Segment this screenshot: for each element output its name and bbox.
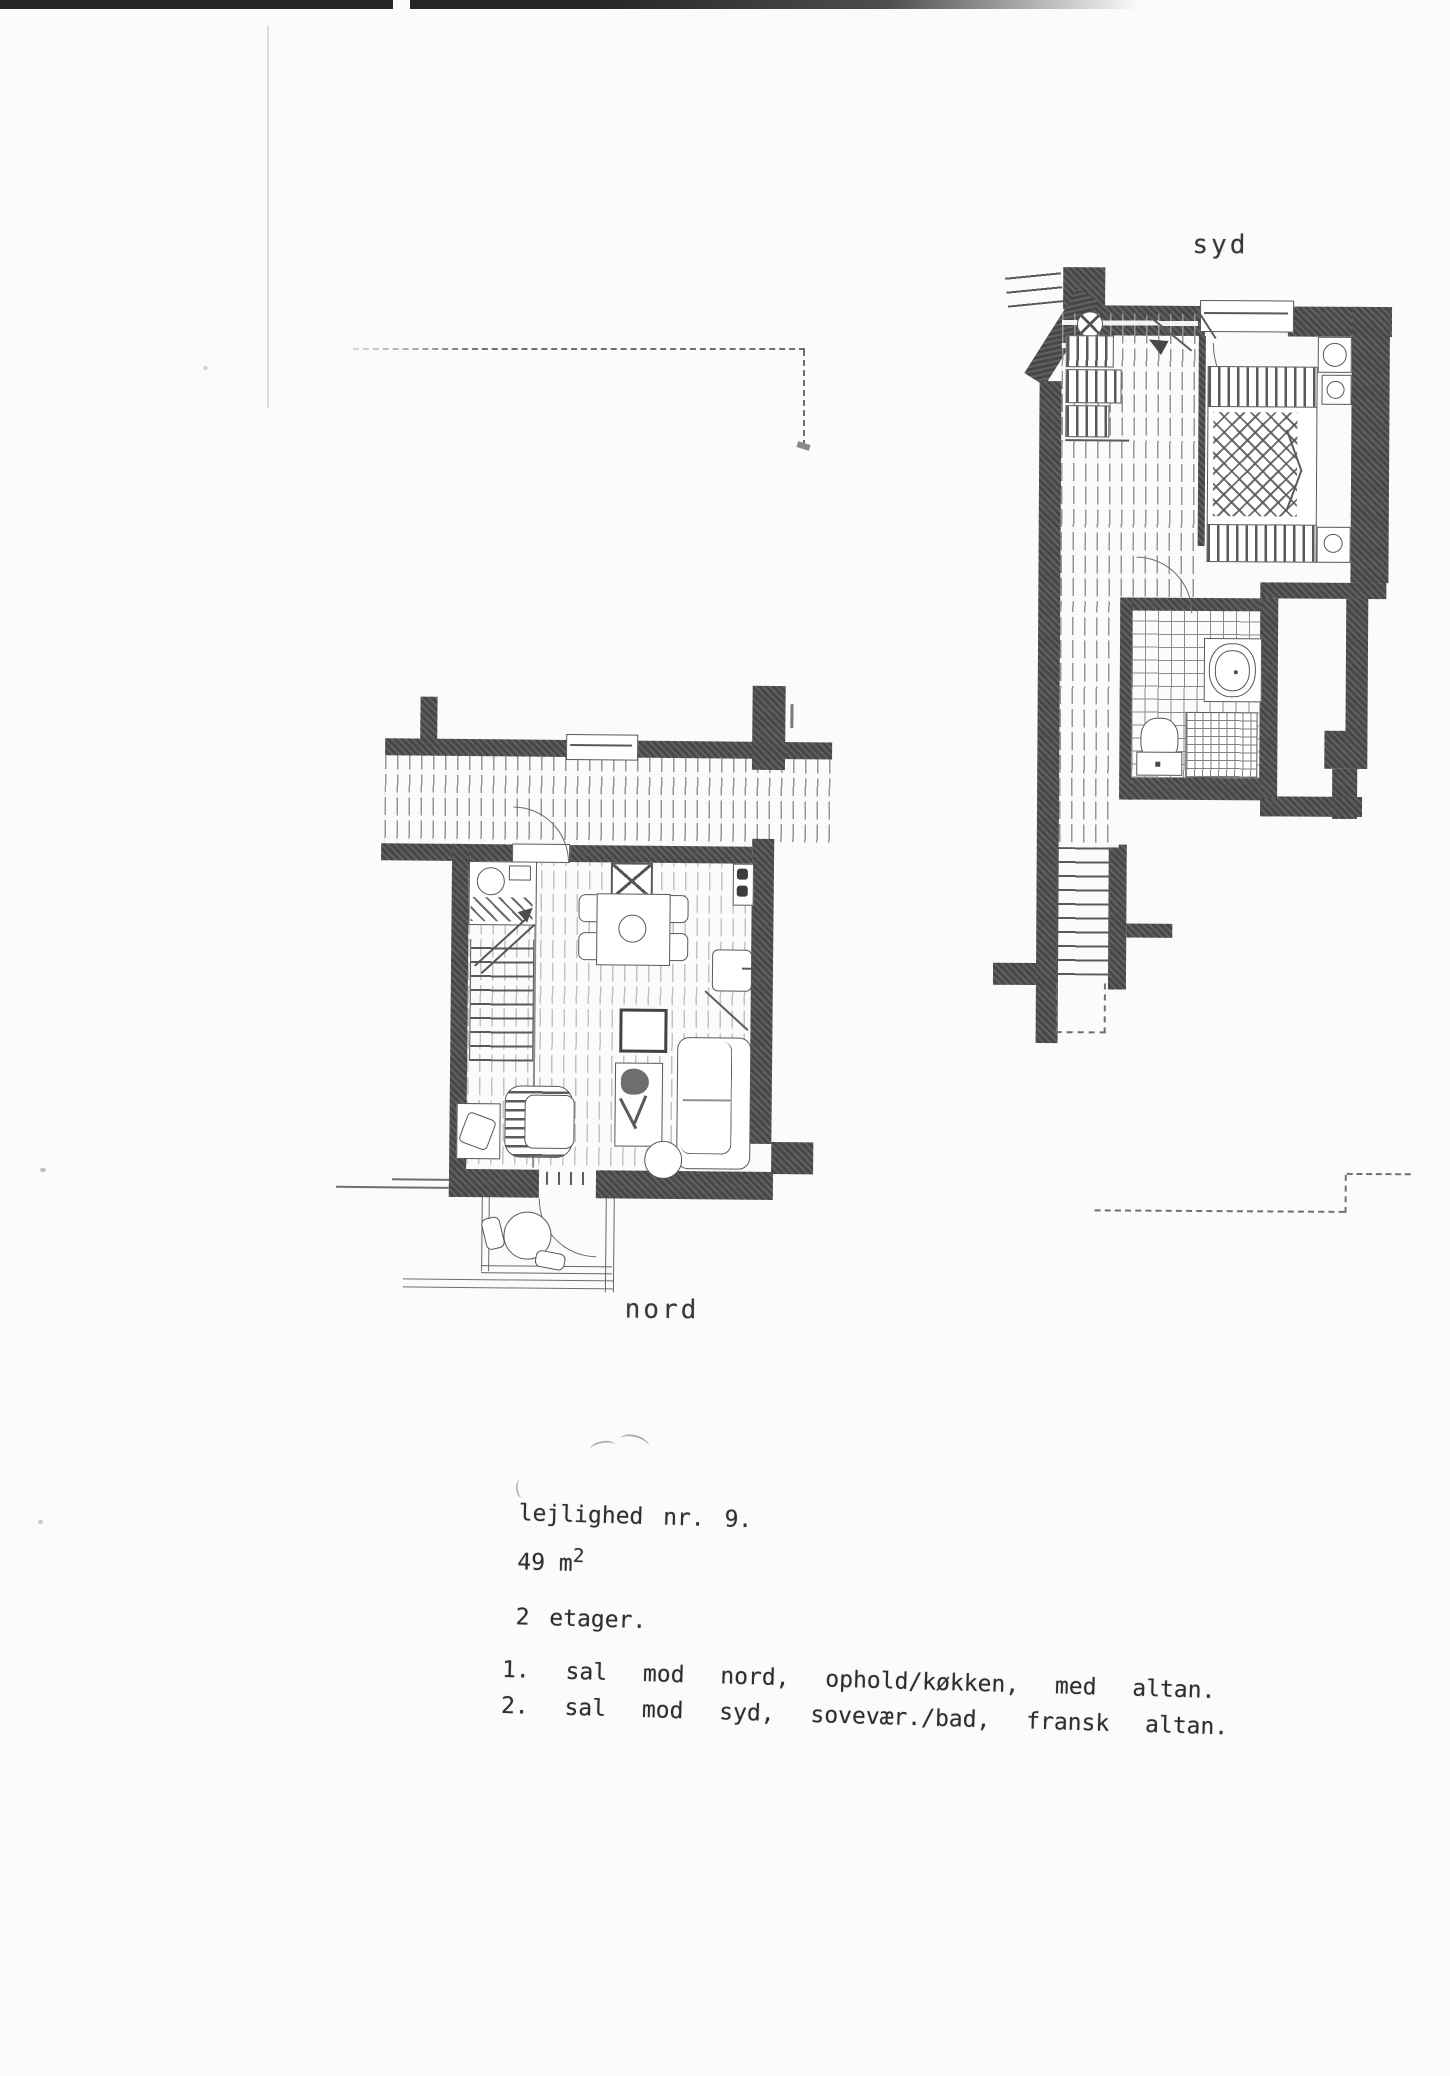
scanned-floorplan-page: { "page": { "label_south": "syd", "label… [0, 0, 1450, 2048]
info-line-apartment: lejlighed nr. 9. [518, 1500, 752, 1533]
info-line-area: 49 m2 [517, 1549, 585, 1577]
info-line-floors: 2 etager. [515, 1604, 646, 1634]
area-superscript: 2 [573, 1545, 585, 1567]
area-value: 49 m [517, 1549, 573, 1577]
apartment-info: lejlighed nr. 9. 49 m2 2 etager. 1. sal … [0, 0, 1450, 2076]
